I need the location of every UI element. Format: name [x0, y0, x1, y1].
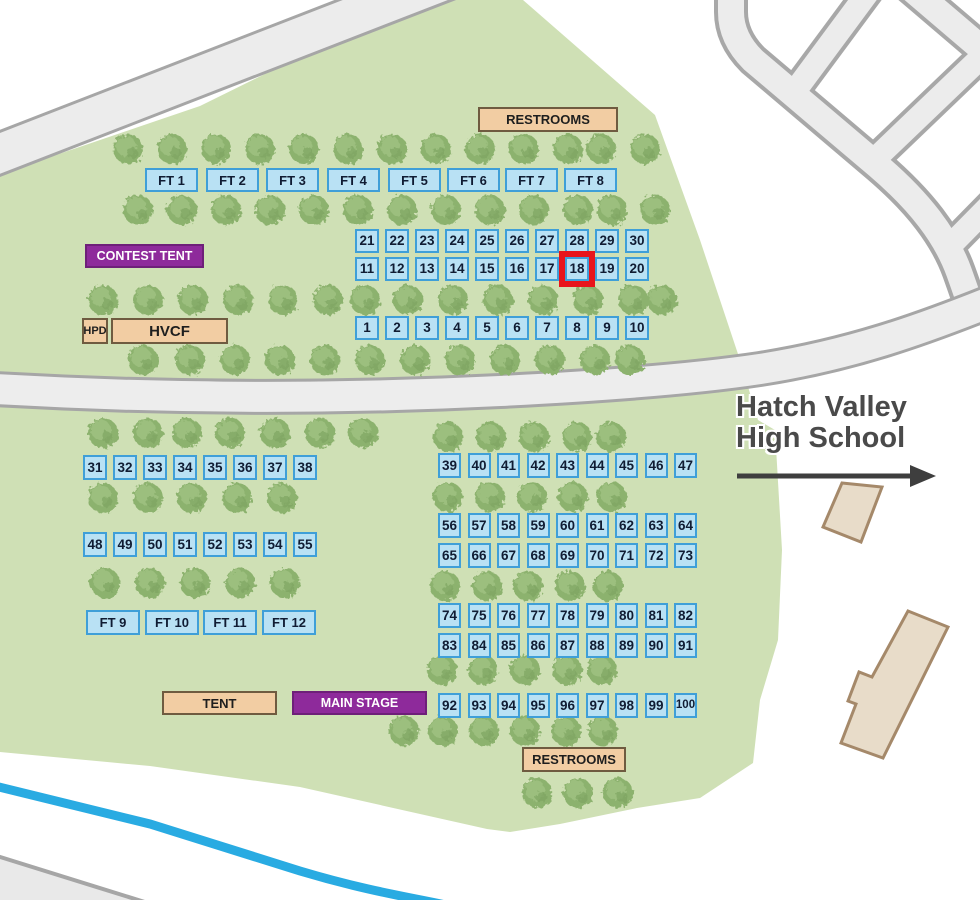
school-title-line1: Hatch Valley	[736, 392, 907, 423]
booth-18: 18	[565, 257, 589, 281]
hpd-label: HPD	[82, 318, 108, 344]
booth-29: 29	[595, 229, 619, 253]
booth-1: 1	[355, 316, 379, 340]
booth-46: 46	[645, 453, 668, 478]
booth-65: 65	[438, 543, 461, 568]
booth-28: 28	[565, 229, 589, 253]
booth-67: 67	[497, 543, 520, 568]
booth-8: 8	[565, 316, 589, 340]
booth-25: 25	[475, 229, 499, 253]
booth-66: 66	[468, 543, 491, 568]
booth-38: 38	[293, 455, 317, 480]
booth-62: 62	[615, 513, 638, 538]
food-tent-ft-12: FT 12	[262, 610, 316, 635]
booth-5: 5	[475, 316, 499, 340]
booth-96: 96	[556, 693, 579, 718]
booth-60: 60	[556, 513, 579, 538]
booth-23: 23	[415, 229, 439, 253]
booth-30: 30	[625, 229, 649, 253]
booth-20: 20	[625, 257, 649, 281]
booth-14: 14	[445, 257, 469, 281]
booth-7: 7	[535, 316, 559, 340]
booth-70: 70	[586, 543, 609, 568]
booth-80: 80	[615, 603, 638, 628]
booth-75: 75	[468, 603, 491, 628]
booth-19: 19	[595, 257, 619, 281]
restrooms-top-label: RESTROOMS	[478, 107, 618, 132]
booth-97: 97	[586, 693, 609, 718]
booth-83: 83	[438, 633, 461, 658]
booth-74: 74	[438, 603, 461, 628]
booth-55: 55	[293, 532, 317, 557]
restrooms-bottom-label: RESTROOMS	[522, 747, 626, 772]
booth-99: 99	[645, 693, 668, 718]
booth-2: 2	[385, 316, 409, 340]
booth-77: 77	[527, 603, 550, 628]
booth-71: 71	[615, 543, 638, 568]
booth-16: 16	[505, 257, 529, 281]
booth-53: 53	[233, 532, 257, 557]
booth-22: 22	[385, 229, 409, 253]
booth-98: 98	[615, 693, 638, 718]
booth-52: 52	[203, 532, 227, 557]
booth-56: 56	[438, 513, 461, 538]
school-title-line2: High School	[736, 423, 907, 454]
food-tent-ft-7: FT 7	[505, 168, 558, 192]
booth-34: 34	[173, 455, 197, 480]
food-tent-ft-11: FT 11	[203, 610, 257, 635]
booth-50: 50	[143, 532, 167, 557]
booth-95: 95	[527, 693, 550, 718]
booth-17: 17	[535, 257, 559, 281]
booth-85: 85	[497, 633, 520, 658]
booth-4: 4	[445, 316, 469, 340]
food-tent-ft-9: FT 9	[86, 610, 140, 635]
booth-6: 6	[505, 316, 529, 340]
booth-81: 81	[645, 603, 668, 628]
booth-90: 90	[645, 633, 668, 658]
food-tent-ft-5: FT 5	[388, 168, 441, 192]
food-tent-ft-1: FT 1	[145, 168, 198, 192]
booth-44: 44	[586, 453, 609, 478]
booth-100: 100	[674, 693, 697, 718]
booth-45: 45	[615, 453, 638, 478]
booth-61: 61	[586, 513, 609, 538]
booth-94: 94	[497, 693, 520, 718]
booth-51: 51	[173, 532, 197, 557]
booth-87: 87	[556, 633, 579, 658]
booth-48: 48	[83, 532, 107, 557]
booth-37: 37	[263, 455, 287, 480]
booth-86: 86	[527, 633, 550, 658]
booth-26: 26	[505, 229, 529, 253]
booth-78: 78	[556, 603, 579, 628]
booth-64: 64	[674, 513, 697, 538]
booth-47: 47	[674, 453, 697, 478]
school-title: Hatch Valley High School	[736, 392, 907, 454]
booth-89: 89	[615, 633, 638, 658]
booth-15: 15	[475, 257, 499, 281]
contest-tent-label: CONTEST TENT	[85, 244, 204, 268]
booth-91: 91	[674, 633, 697, 658]
booth-79: 79	[586, 603, 609, 628]
food-tent-ft-8: FT 8	[564, 168, 617, 192]
booth-24: 24	[445, 229, 469, 253]
food-tent-ft-4: FT 4	[327, 168, 380, 192]
hvcf-label: HVCF	[111, 318, 228, 344]
booth-93: 93	[468, 693, 491, 718]
booth-10: 10	[625, 316, 649, 340]
booth-31: 31	[83, 455, 107, 480]
booth-12: 12	[385, 257, 409, 281]
booth-32: 32	[113, 455, 137, 480]
booth-35: 35	[203, 455, 227, 480]
booth-39: 39	[438, 453, 461, 478]
booth-40: 40	[468, 453, 491, 478]
booth-33: 33	[143, 455, 167, 480]
main-stage-label: MAIN STAGE	[292, 691, 427, 715]
booth-69: 69	[556, 543, 579, 568]
booth-13: 13	[415, 257, 439, 281]
booth-41: 41	[497, 453, 520, 478]
booth-21: 21	[355, 229, 379, 253]
booth-63: 63	[645, 513, 668, 538]
food-tent-ft-3: FT 3	[266, 168, 319, 192]
booth-68: 68	[527, 543, 550, 568]
food-tent-ft-6: FT 6	[447, 168, 500, 192]
booth-54: 54	[263, 532, 287, 557]
booth-59: 59	[527, 513, 550, 538]
booth-43: 43	[556, 453, 579, 478]
booth-9: 9	[595, 316, 619, 340]
booth-58: 58	[497, 513, 520, 538]
booth-3: 3	[415, 316, 439, 340]
booth-72: 72	[645, 543, 668, 568]
booth-92: 92	[438, 693, 461, 718]
booth-49: 49	[113, 532, 137, 557]
booth-42: 42	[527, 453, 550, 478]
booth-76: 76	[497, 603, 520, 628]
booth-57: 57	[468, 513, 491, 538]
booth-27: 27	[535, 229, 559, 253]
booth-11: 11	[355, 257, 379, 281]
food-tent-ft-10: FT 10	[145, 610, 199, 635]
festival-map: 2122232425262728293011121314151617181920…	[0, 0, 980, 900]
booth-73: 73	[674, 543, 697, 568]
food-tent-ft-2: FT 2	[206, 168, 259, 192]
booth-88: 88	[586, 633, 609, 658]
booth-36: 36	[233, 455, 257, 480]
booth-82: 82	[674, 603, 697, 628]
booth-84: 84	[468, 633, 491, 658]
tent-label: TENT	[162, 691, 277, 715]
